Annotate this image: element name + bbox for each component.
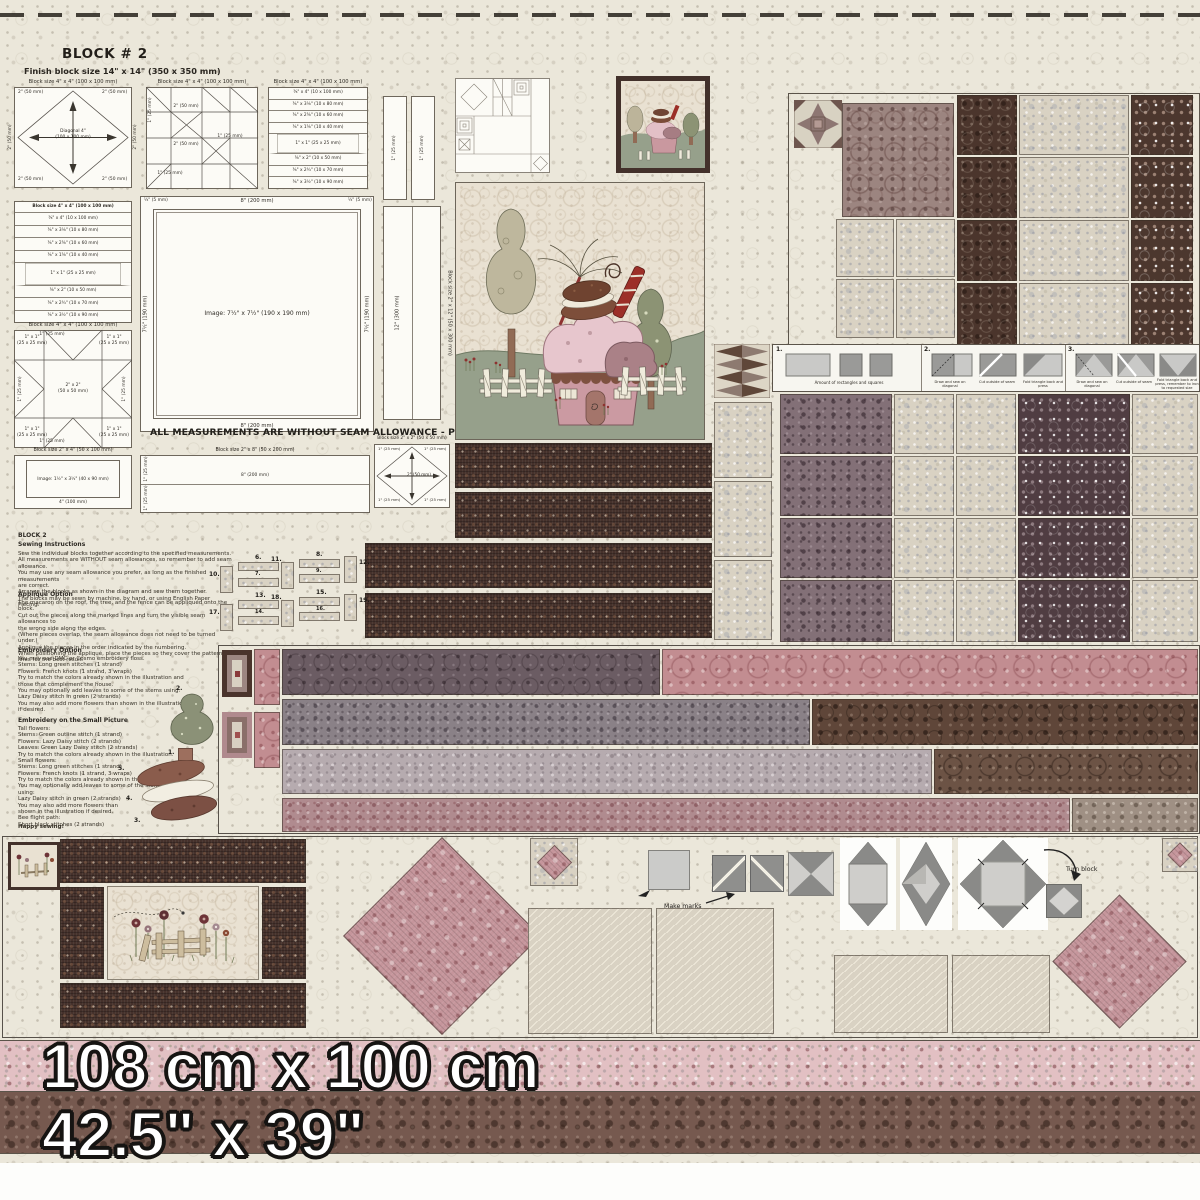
image-block-corner-tl: ¼" (5 mm) (144, 199, 168, 204)
fabric-swatch-beige (1132, 518, 1198, 578)
fabric-swatch-brown-swirl (957, 283, 1017, 345)
small-picture-preview (8, 842, 60, 890)
make-marks-label: Make marks (664, 903, 701, 910)
log-cabin-row: ⅜" x 2¾" (10 x 70 mm) (15, 298, 131, 310)
fence-number-14: 14. (255, 610, 264, 615)
fabric-strip-pink-floral (282, 798, 1070, 832)
log-cabin-2-caption: Block size 4" x 4" (100 x 100 mm) (15, 202, 131, 213)
block-2x8-length: 8" (200 mm) (241, 474, 269, 479)
half-square-triangle-piece (952, 955, 1050, 1033)
fabric-swatch-pink-small (254, 649, 280, 705)
diagram-b-label-4: 1" (25 mm) (157, 172, 182, 177)
star-corner-tr: 1" x 1" (106, 336, 121, 341)
diagram-b-label-3: 1" (25 mm) (217, 135, 242, 140)
diagram-a-corner-tl: 2" (50 mm) (18, 91, 43, 96)
fabric-strip-taupe (1072, 798, 1198, 832)
construction-square-plain (648, 850, 690, 890)
fence-post-piece (220, 566, 233, 593)
fabric-swatch-plum-floral (780, 580, 892, 642)
instructions-block-title: BLOCK 2 (18, 533, 47, 539)
applique-template-tree (158, 692, 226, 746)
fence-rail-piece (238, 600, 279, 609)
step-2-caption-b: Cut outside of seam (976, 381, 1018, 385)
fabric-swatch-beige (896, 219, 955, 277)
diagram-a-side-left: 2" (50 mm) (9, 124, 13, 149)
construction-hourglass-square (788, 852, 834, 896)
fabric-strip-dark-brown (455, 443, 712, 488)
page-subtitle: Finish block size 14" x 14" (350 x 350 m… (24, 67, 221, 75)
construction-panel-2 (900, 838, 952, 930)
star-corner-bl-mm: (25 x 25 mm) (17, 434, 47, 439)
fence-number-7: 7. (255, 572, 260, 577)
log-cabin-row: ⅜" x 3½" (10 x 90 mm) (269, 177, 367, 188)
star-corner-bl: 1" x 1" (24, 428, 39, 433)
fabric-swatch-brown-swirl (957, 220, 1017, 281)
flying-geese-block (714, 344, 770, 398)
fabric-swatch-plum-dot (1018, 518, 1130, 578)
fabric-swatch-beige (836, 219, 894, 277)
log-cabin-row: ⅜" x 3⅛" (10 x 80 mm) (269, 100, 367, 112)
star-edge-left: 1" (25 mm) (19, 376, 23, 401)
block-2x8-row2: 1" (25 mm) (145, 485, 149, 510)
log-cabin-row: ⅜" x 2¾" (10 x 70 mm) (269, 166, 367, 178)
fence-rail-piece (299, 597, 340, 606)
fabric-strip-brown-wreath (934, 749, 1198, 794)
fence-post-piece (281, 562, 294, 589)
block-2x2-corner-bl: 1" (25 mm) (378, 498, 400, 502)
block-2x2-corner-tl: 1" (25 mm) (378, 447, 400, 451)
applique-option-heading: Appliqué Option (18, 592, 73, 598)
fence-number-10: 10. (209, 572, 220, 578)
diagram-b-label-1: 2" (50 mm) (173, 105, 198, 110)
diagram-a-corner-br: 2" (50 mm) (102, 178, 127, 183)
fabric-swatch-beige (896, 279, 955, 338)
diagram-c-caption: Block size 4" x 4" (100 x 100 mm) (274, 80, 363, 85)
construction-square-diagonal (750, 855, 784, 892)
fence-number-15: 15. (316, 590, 327, 596)
step-2-caption-a: Draw and sew on diagonal (928, 381, 972, 389)
log-cabin-block-diagram: ⅜" x 4" (10 x 100 mm) ⅜" x 3⅛" (10 x 80 … (268, 87, 368, 189)
log-cabin-row: ⅜" x 2" (10 x 50 mm) (15, 286, 131, 298)
main-illustration-panel (455, 182, 705, 440)
star-corner-tl: 1" x 1" (24, 336, 39, 341)
step-3-caption-a: Draw and sew on diagonal (1072, 381, 1112, 389)
diagram-a-side-right: 2" (50 mm) (134, 124, 138, 149)
star-center: 2" x 2" (65, 384, 80, 389)
fabric-swatch-plum-dot (1018, 394, 1130, 454)
embroidery-option-heading: Embroidery Option (18, 648, 82, 654)
image-block-right-length: 7½" (190 mm) (366, 296, 371, 333)
diagram-b-caption: Block size 4" x 4" (100 x 100 mm) (158, 80, 247, 85)
fence-post-piece (220, 604, 233, 631)
fabric-swatch-beige (956, 456, 1016, 516)
fabric-swatch-beige (956, 580, 1016, 642)
fence-number-6: 6. (255, 555, 261, 561)
block-2x8-diagram (140, 455, 370, 513)
log-cabin-row: ⅜" x 4" (10 x 100 mm) (269, 88, 367, 100)
fabric-swatch-plum-floral (780, 518, 892, 578)
log-cabin-row: ⅜" x 1⅝" (10 x 40 mm) (15, 251, 131, 263)
fence-post-piece (344, 594, 357, 621)
log-cabin-row: ⅜" x 3½" (10 x 90 mm) (15, 311, 131, 322)
diamond-in-square-block-small (1162, 838, 1198, 872)
diagram-a-corner-bl: 2" (50 mm) (18, 178, 43, 183)
step-1-caption: Amount of rectangles and squares (784, 381, 914, 385)
diagram-k-caption: Block size 2" x 2" (50 x 50 mm) (377, 437, 447, 442)
fabric-swatch-beige (1019, 220, 1129, 281)
diagram-j-caption: Block size 2" x 8" (50 x 200 mm) (215, 448, 294, 453)
fabric-strip-plum (282, 649, 660, 695)
diamond-in-square-block (530, 838, 578, 886)
log-cabin-row: ⅜" x 2⅜" (10 x 60 mm) (269, 111, 367, 123)
panel-size-imperial: 42.5" x 39" (42, 1104, 364, 1167)
fabric-swatch-plum-dot (1018, 456, 1130, 516)
fabric-strip-dark-brown (365, 543, 712, 588)
fence-number-13: 13. (255, 593, 266, 599)
diagram-a-caption: Block size 4" x 4" (100 x 100 mm) (29, 80, 118, 85)
star-center-mm: (50 x 50 mm) (58, 390, 88, 395)
fabric-swatch-brown-swirl (957, 157, 1017, 218)
image-block-corner-tr: ¼" (5 mm) (348, 199, 372, 204)
fabric-swatch-beige (1019, 95, 1129, 155)
fabric-strip-lavender (282, 749, 932, 794)
fabric-swatch-brown-dot (1131, 220, 1193, 281)
star-corner-tr-mm: (25 x 25 mm) (99, 342, 129, 347)
construction-panel-1 (840, 838, 896, 930)
fence-post-piece (344, 556, 357, 583)
block-2x12-length: 12" (300 mm) (396, 295, 401, 330)
log-cabin-row: ⅜" x 1⅝" (10 x 40 mm) (269, 123, 367, 135)
log-cabin-block-diagram-2: Block size 4" x 4" (100 x 100 mm) ⅜" x 4… (14, 201, 132, 323)
diagram-a-center: Diagonal 4" (60, 130, 86, 135)
sewing-instructions-heading: Sewing Instructions (18, 542, 85, 548)
applique-number-macaron-top: 5. (118, 766, 124, 772)
fence-number-8: 8. (316, 552, 322, 558)
fabric-strip-mid-brown (812, 699, 1198, 745)
diagram-g-caption: Block size 4" x 4" (100 x 100 mm) (29, 323, 118, 328)
turn-block-label: Turn block (1066, 866, 1098, 873)
fabric-swatch-beige (714, 402, 772, 478)
fabric-panel: BLOCK # 2 Finish block size 14" x 14" (3… (0, 0, 1200, 1200)
fabric-swatch-beige (714, 560, 772, 640)
block-2x2-corner-br: 1" (25 mm) (424, 498, 446, 502)
construction-panel-3 (958, 838, 1048, 930)
fabric-swatch-beige (894, 394, 954, 454)
fabric-strip-dark-brown (365, 593, 712, 638)
applique-template-macaron (126, 760, 230, 826)
page-title: BLOCK # 2 (62, 48, 148, 62)
diagram-a-center-mm: (100 x 100 mm) (55, 136, 91, 141)
star-edge-right: 1" (25 mm) (123, 376, 127, 401)
image-block-left-length: 7½" (190 mm) (144, 296, 149, 333)
top-cut-dash-line (0, 13, 1200, 17)
fabric-swatch-beige (1132, 394, 1198, 454)
fabric-swatch-beige (956, 518, 1016, 578)
half-square-triangle-piece (528, 908, 652, 1034)
fabric-swatch-mauve-wreath (842, 103, 954, 217)
fabric-swatch-plum-floral (780, 394, 892, 454)
half-square-triangle-piece (656, 908, 774, 1034)
fabric-swatch-beige (894, 518, 954, 578)
block-2x12-diagram (383, 206, 441, 420)
fence-rail-piece (238, 616, 279, 625)
fabric-swatch-brown-dot (1131, 283, 1193, 345)
picture-frame-strip-top (60, 839, 306, 883)
small-picture-center (107, 886, 259, 980)
fabric-swatch-beige (1019, 283, 1129, 345)
diagram-b-label-5: 1" (25 mm) (149, 97, 153, 122)
fabric-swatch-beige (1132, 456, 1198, 516)
diagram-a-corner-tr: 2" (50 mm) (102, 91, 127, 96)
fence-number-19: 19. (359, 598, 370, 604)
applique-number-trunk: 1. (168, 750, 174, 756)
fabric-swatch-plum-dot (1018, 580, 1130, 642)
make-marks-arrow-icon (704, 890, 736, 906)
step-3-caption-b: Cut outside of seam (1114, 381, 1154, 385)
fence-number-17: 17. (209, 610, 220, 616)
log-cabin-center: 1" x 1" (25 x 25 mm) (269, 134, 367, 154)
construction-square-diagonal (712, 855, 746, 892)
fabric-strip-grey-floral (282, 699, 810, 745)
fence-number-12: 12. (359, 560, 370, 566)
block-2x12-caption: Block size 2" x 12" (50 x 300 mm) (447, 270, 452, 356)
block-2x2-center: 2" (50 mm) (407, 473, 431, 477)
mini-log-cabin-block-brown (222, 650, 252, 697)
log-cabin-row: ⅜" x 4" (10 x 100 mm) (15, 213, 131, 225)
step-2-diagram (930, 352, 1064, 378)
block-2x2-corner-tr: 1" (25 mm) (424, 447, 446, 451)
picture-frame-strip-bottom (60, 983, 306, 1028)
fabric-swatch-brown-dot (1131, 95, 1193, 155)
strip-1in-a-label: 1" (25 mm) (393, 135, 397, 160)
fence-rail-piece (299, 559, 340, 568)
picture-frame-strip-left (60, 887, 104, 979)
fabric-swatch-beige (1132, 580, 1198, 642)
star-corner-br: 1" x 1" (106, 428, 121, 433)
fabric-strip-pink-wreath (662, 649, 1198, 695)
fabric-swatch-beige (836, 279, 894, 338)
block-2x8-row1: 1" (25 mm) (145, 456, 149, 481)
fabric-swatch-beige (894, 456, 954, 516)
fence-post-piece (281, 600, 294, 627)
fabric-swatch-plum-floral (780, 456, 892, 516)
diagram-i-caption: Block size 2" x 4" (50 x 100 mm) (33, 448, 112, 453)
log-cabin-row: ⅜" x 2⅜" (10 x 60 mm) (15, 238, 131, 250)
picture-frame-strip-right (262, 887, 306, 979)
small-picture-heading: Embroidery on the Small Picture (18, 718, 128, 724)
step-3-caption-c: Fold triangle back and press, remember t… (1155, 379, 1199, 391)
log-cabin-2-center: 1" x 1" (25 x 25 mm) (15, 263, 131, 286)
fabric-swatch-pink-small (254, 712, 280, 768)
block-2x4-length: 4" (100 mm) (59, 501, 87, 506)
turned-block-diagram (1046, 884, 1082, 918)
image-block-top-length: 8" (200 mm) (240, 199, 273, 204)
corner-mark-arrow-icon (636, 886, 654, 898)
fence-rail-piece (238, 578, 279, 587)
star-edge-top: 1" (25 mm) (39, 333, 64, 338)
turn-block-arrow-icon (1040, 846, 1082, 884)
small-block-preview-frame (616, 76, 710, 173)
step-2-caption-c: Fold triangle back and press (1020, 381, 1066, 389)
cupcake-house-illustration (456, 183, 704, 439)
star-corner-br-mm: (25 x 25 mm) (99, 434, 129, 439)
fabric-swatch-beige (714, 481, 772, 557)
step-3-diagram (1074, 352, 1198, 378)
mini-log-cabin-block-pink (222, 712, 252, 758)
block-2x4-image-label: Image: 1½" x 3½" (40 x 90 mm) (37, 478, 109, 483)
star-quilt-block (794, 100, 842, 148)
step-1-diagram (784, 352, 914, 378)
block-layout-sketch (455, 78, 550, 173)
fence-rail-piece (299, 574, 340, 583)
diagram-b-label-2: 2" (50 mm) (173, 143, 198, 148)
fence-rail-piece (238, 562, 279, 571)
fabric-strip-dark-brown (455, 492, 712, 538)
half-square-triangle-piece (834, 955, 948, 1033)
step-number-1: 1. (776, 347, 782, 353)
small-block-preview-art (621, 81, 705, 168)
log-cabin-row: ⅜" x 3⅛" (10 x 80 mm) (15, 226, 131, 238)
fabric-swatch-beige (956, 394, 1016, 454)
fabric-swatch-beige (894, 580, 954, 642)
image-block-center-label: Image: 7½" x 7½" (190 x 190 mm) (204, 311, 309, 317)
star-edge-bottom: 1" (25 mm) (39, 440, 64, 445)
fabric-swatch-brown-dot (1131, 157, 1193, 218)
panel-size-metric: 108 cm x 100 cm (42, 1036, 539, 1099)
strip-1in-b-label: 1" (25 mm) (421, 135, 425, 160)
log-cabin-row: ⅜" x 2" (10 x 50 mm) (269, 154, 367, 166)
star-corner-tl-mm: (25 x 25 mm) (17, 342, 47, 347)
fence-rail-piece (299, 612, 340, 621)
fabric-swatch-brown-swirl (957, 95, 1017, 155)
fabric-swatch-beige (1019, 157, 1129, 218)
happy-sewing-note: Happy sewing! (18, 824, 64, 830)
